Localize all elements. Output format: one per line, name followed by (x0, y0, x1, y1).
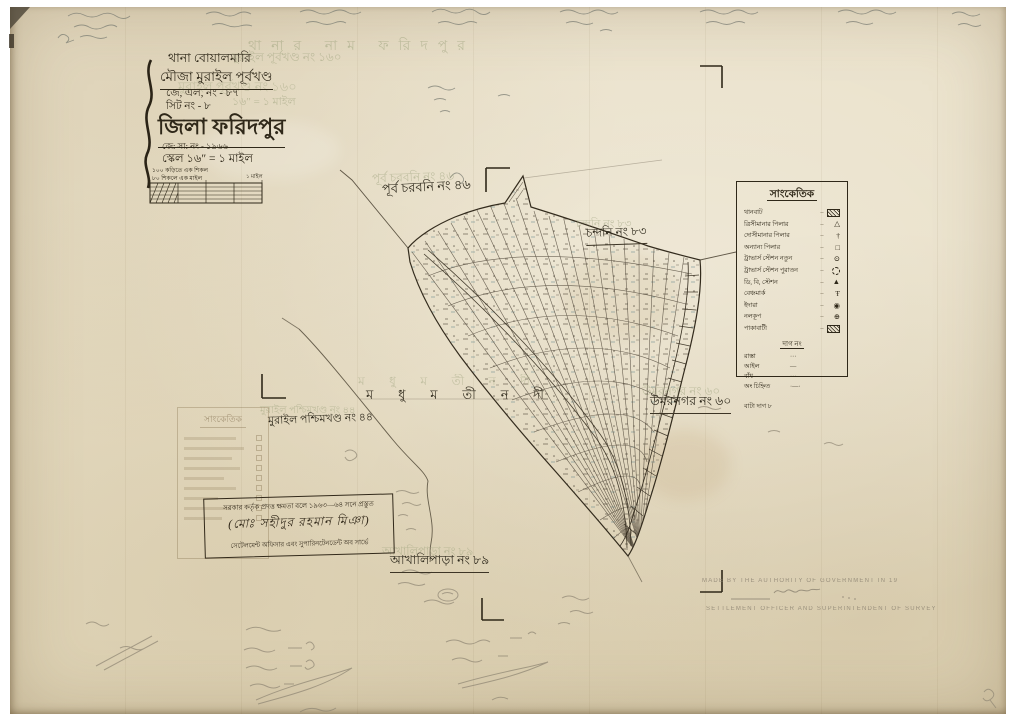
legend-title: সাংকেতিক (744, 187, 840, 204)
legend-item: পাকাবাটী– (744, 323, 840, 335)
circle-dashed-icon (827, 267, 840, 275)
legend-item: ইদারা–◉ (744, 300, 840, 312)
triangle-icon: △ (827, 220, 840, 228)
ghost-legend-title: সাংকেতিক (200, 412, 247, 428)
paper-edge-tab (9, 34, 14, 48)
legend-box: সাংকেতিক থানবাট– ত্রিসীমানার পিলার–△ দোস… (736, 181, 848, 377)
map-linework (0, 0, 1024, 723)
hatch-box-icon (827, 209, 840, 217)
hatch-box-icon (827, 325, 840, 333)
river-letter: দী (533, 386, 544, 407)
benchmark-icon: Ŧ (827, 290, 840, 298)
parcel-block (408, 176, 701, 556)
legend-line-item: রাস্তা··· (744, 352, 840, 362)
river-letter: ধু (398, 386, 405, 407)
scanned-map-page: থানার নাম ফরিদপুর মুরাইল পূর্বখণ্ড নং ১৬… (0, 0, 1024, 723)
river-letter: ন (501, 386, 509, 407)
stamp-signature-name: (মোঃ সহীদুর রহমান মিঞা) (210, 512, 388, 537)
corner-fold-mark (10, 7, 30, 29)
legend-item: ট্রাভার্স স্টেশন পুরাতন– (744, 265, 840, 277)
circle-filled-icon: ◉ (827, 302, 840, 310)
label-south-mouza: আখালিপাড়া নং ৮৯ (390, 552, 489, 573)
triangle-filled-icon: ▲ (827, 278, 840, 286)
legend-item: দোসীমানার পিলার–† (744, 230, 840, 242)
river-letter: ম (366, 386, 373, 407)
legend-item: ট্রাভার্স স্টেশন নতুন–⊙ (744, 253, 840, 265)
legend-item: অন্যান্য পিলার–□ (744, 242, 840, 254)
legend-footer: বাটা দাগ ৮ (744, 401, 840, 412)
legend-item: বেঞ্চমার্ক–Ŧ (744, 288, 840, 300)
river-letter: তী (462, 386, 475, 407)
cross-icon: † (827, 232, 840, 240)
river-letter: ম (430, 386, 437, 407)
pencil-designation-line: SETTLEMENT OFFICER AND SUPERINTENDENT OF… (706, 606, 937, 612)
certification-stamp-box: সরকার কর্তৃক প্রদত্ত ক্ষমতা বলে ১৯৬৩—৬৪ … (203, 493, 395, 558)
legend-subheading: দাগ নং (744, 338, 840, 350)
legend-line-item: অং চিহ্নিত·—· (744, 382, 840, 392)
legend-item: থানবাট– (744, 207, 840, 219)
legend-item: ডি, বি, স্টেশন–▲ (744, 277, 840, 289)
stamp-line-designation: সেটেলমেন্ট অফিসার এবং সুপারিনটেনডেন্ট অব… (210, 536, 388, 553)
label-east-top-mouza: চন্দনি নং ৮৩ (586, 223, 647, 246)
label-east-mouza: উমরনগর নং ৬০ (650, 393, 731, 414)
square-icon: □ (827, 244, 840, 252)
circle-plus-icon: ⊕ (827, 313, 840, 321)
legend-item: নলকূপ–⊕ (744, 311, 840, 323)
pencil-signature (731, 589, 856, 599)
circle-dot-icon: ⊙ (827, 255, 840, 263)
title-brace-mark (146, 60, 152, 188)
legend-line-item: বাঁধ··· (744, 372, 840, 382)
pencil-construction-line (524, 160, 662, 178)
legend-item: ত্রিসীমানার পিলার–△ (744, 219, 840, 231)
river-name-madhumati: মধুমতীনদী (366, 386, 544, 407)
pencil-authority-line: MADE BY THE AUTHORITY OF GOVERNMENT IN 1… (702, 578, 898, 584)
legend-line-item: আইল— (744, 362, 840, 372)
scale-bar-label: ১ মাইল (246, 174, 263, 182)
scale-note-2: ৮০ শিকলে এক মাইল (152, 173, 202, 184)
